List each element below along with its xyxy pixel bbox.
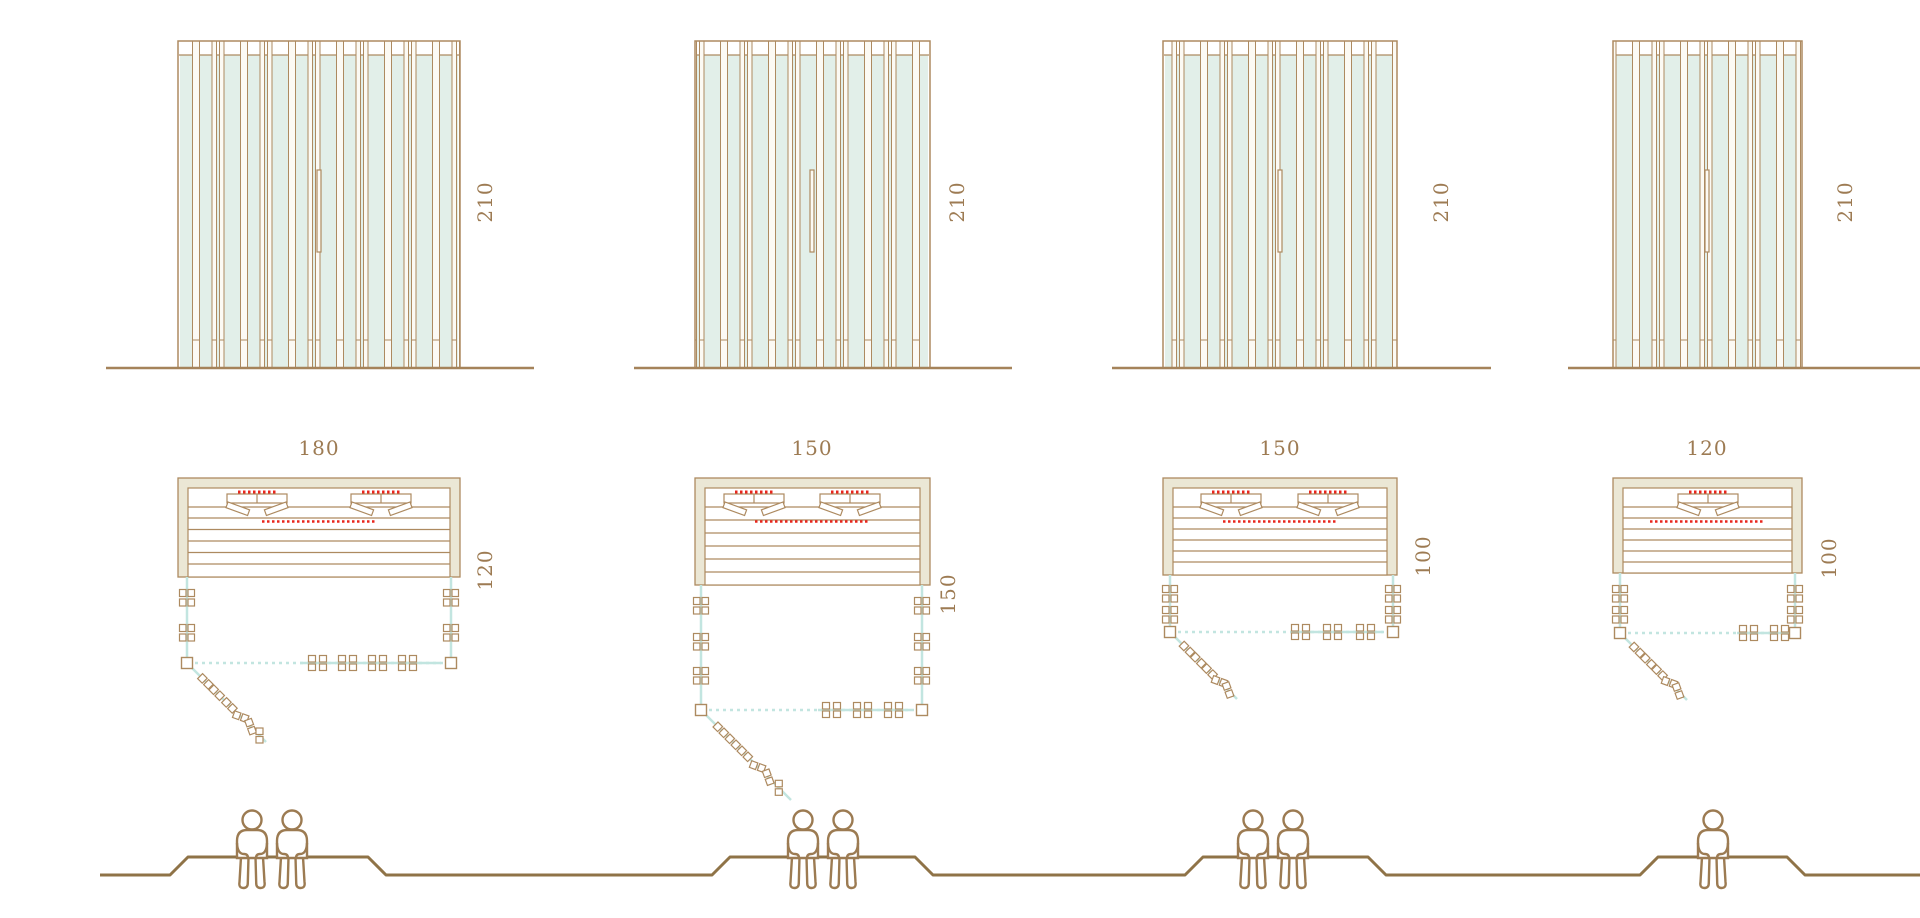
door-handle <box>317 170 321 252</box>
corner-post <box>1615 628 1626 639</box>
corner-post <box>182 658 193 669</box>
seated-person <box>788 811 818 889</box>
depth-label: 100 <box>1411 535 1435 576</box>
width-label: 150 <box>791 436 832 460</box>
corner-post <box>696 705 707 716</box>
corner-post <box>1388 627 1399 638</box>
glass-walls <box>701 585 922 800</box>
depth-label: 120 <box>473 549 497 590</box>
height-label: 210 <box>945 181 969 222</box>
width-label: 180 <box>298 436 339 460</box>
floor-plan-2: 150 <box>694 436 961 800</box>
seated-person <box>1698 811 1728 889</box>
elevation-1: 210 <box>106 41 534 368</box>
corner-post <box>446 658 457 669</box>
seated-person <box>237 811 267 889</box>
door-handle <box>1705 170 1709 252</box>
seated-person <box>1278 811 1308 889</box>
module-1: 210 180 <box>106 41 534 743</box>
width-label: 150 <box>1259 436 1300 460</box>
diagram-canvas: 210 180 <box>0 0 1920 918</box>
seated-person <box>1238 811 1268 889</box>
height-label: 210 <box>1833 181 1857 222</box>
module-3: 210 150 <box>1112 41 1491 699</box>
module-2: 210 150 <box>634 41 1012 800</box>
corner-post <box>917 705 928 716</box>
elevation-4: 210 <box>1568 41 1920 368</box>
seating-row <box>100 811 1920 889</box>
elevation-3: 210 <box>1112 41 1491 368</box>
floor-plan-1: 180 <box>178 436 497 743</box>
door-handle <box>1278 170 1282 252</box>
glass-walls <box>1620 573 1795 700</box>
sauna-comparison-diagram: 210 180 <box>0 0 1920 918</box>
corner-post <box>1790 628 1801 639</box>
floor-plan-3: 150 <box>1163 436 1436 699</box>
width-label: 120 <box>1686 436 1727 460</box>
bench-profile-line <box>100 857 1920 875</box>
door-handle <box>810 170 814 252</box>
depth-label: 100 <box>1817 537 1841 578</box>
depth-label: 150 <box>936 573 960 614</box>
height-label: 210 <box>1429 181 1453 222</box>
seated-person <box>277 811 307 889</box>
floor-plan-4: 120 <box>1613 436 1842 700</box>
height-label: 210 <box>473 181 497 222</box>
seated-person <box>828 811 858 889</box>
module-4: 210 120 <box>1568 41 1920 700</box>
corner-post <box>1165 627 1176 638</box>
elevation-2: 210 <box>634 41 1012 368</box>
